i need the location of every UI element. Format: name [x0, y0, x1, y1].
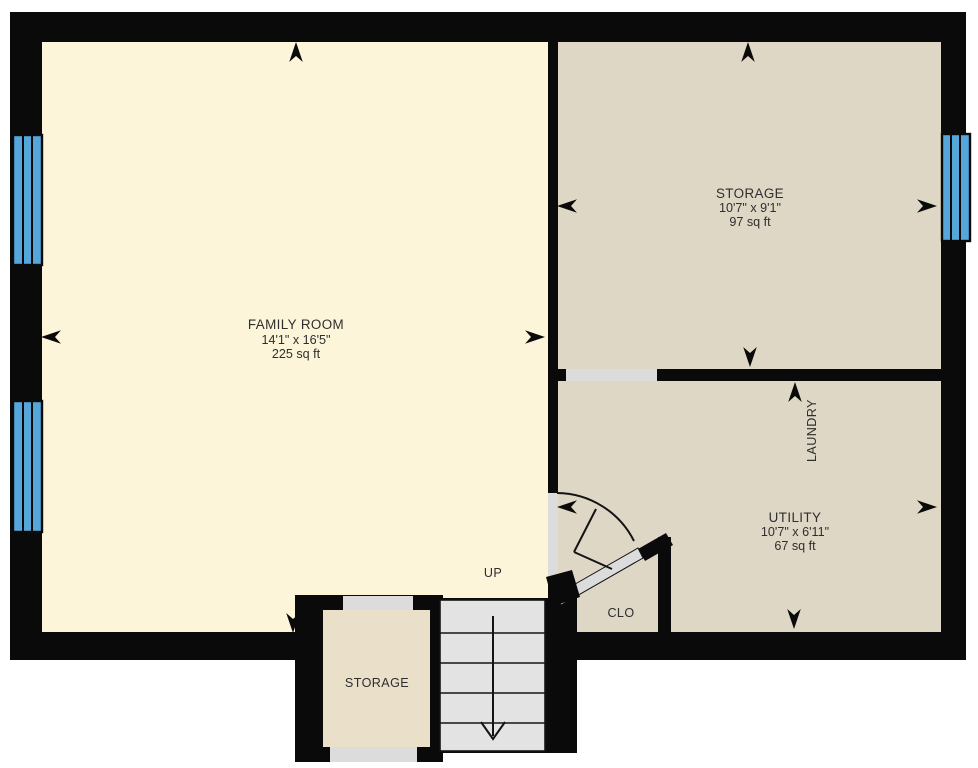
storage-room-dimensions: 10'7" x 9'1": [719, 201, 781, 215]
utility-room-name: UTILITY: [769, 510, 822, 525]
closet-label: CLO: [607, 606, 634, 620]
window-glass: [942, 134, 970, 241]
floor-plan: FAMILY ROOM 14'1" x 16'5" 225 sq ft STOR…: [0, 0, 978, 768]
closet-side-wall: [658, 537, 671, 632]
family-room-name: FAMILY ROOM: [248, 317, 344, 332]
small-storage-top-doorway-opening: [343, 596, 413, 610]
window-left-lower: [13, 401, 42, 532]
family-room-dimensions: 14'1" x 16'5": [261, 333, 330, 347]
utility-room-dimensions: 10'7" x 6'11": [761, 525, 829, 539]
window-right: [942, 134, 970, 241]
utility-room-area: 67 sq ft: [774, 539, 816, 553]
utility-room-floor: [558, 381, 941, 632]
laundry-label: LAUNDRY: [805, 399, 819, 462]
window-glass: [13, 401, 42, 532]
storage-utility-doorway-opening: [566, 369, 657, 381]
floor-plan-canvas: FAMILY ROOM 14'1" x 16'5" 225 sq ft STOR…: [0, 0, 978, 768]
small-storage-bottom-doorway-opening: [330, 747, 417, 762]
storage-room-area: 97 sq ft: [729, 215, 771, 229]
small-storage-label: STORAGE: [345, 676, 409, 690]
stairs-up-label: UP: [484, 566, 502, 580]
family-utility-doorway-opening: [548, 493, 558, 580]
storage-room-name: STORAGE: [716, 186, 784, 201]
window-glass: [13, 135, 42, 265]
family-room-area: 225 sq ft: [272, 347, 321, 361]
window-left-upper: [13, 135, 42, 265]
